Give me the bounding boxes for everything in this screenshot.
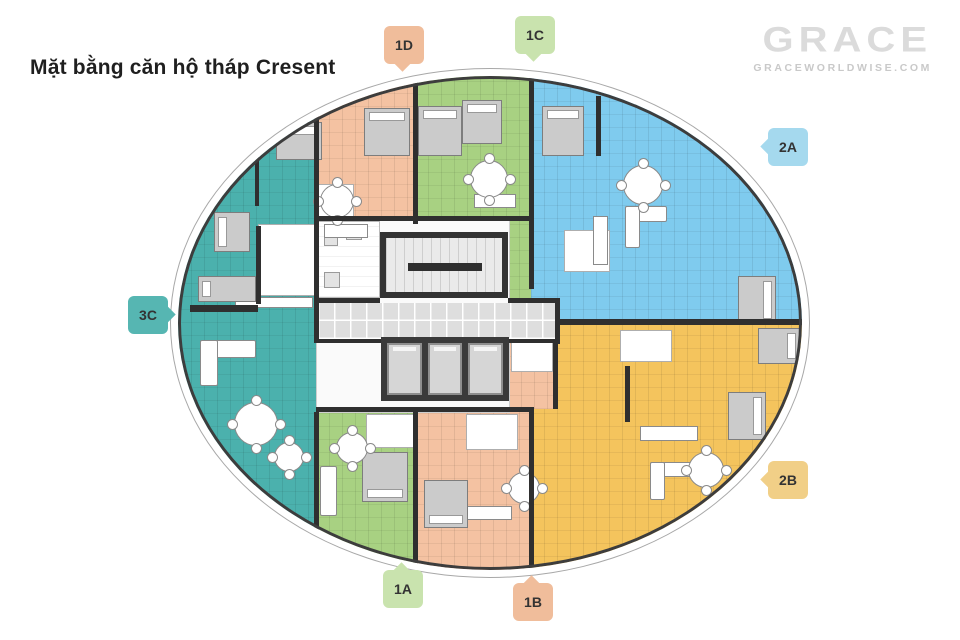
dining-chair: [484, 195, 495, 206]
wall: [508, 298, 560, 303]
bed: [728, 392, 766, 440]
bed: [424, 480, 468, 528]
bed: [462, 100, 502, 144]
floor-plan: [178, 76, 802, 570]
kitchen-counter: [640, 426, 698, 441]
dining-chair: [537, 483, 548, 494]
dining-chair: [519, 465, 530, 476]
dining-chair: [484, 153, 495, 164]
wall: [255, 152, 259, 206]
dining-chair: [701, 445, 712, 456]
wall: [316, 407, 534, 412]
dining-table: [320, 184, 354, 218]
bed-pillow: [218, 217, 227, 247]
dining-table: [508, 472, 540, 504]
dining-table: [470, 160, 508, 198]
wall: [190, 305, 258, 312]
dining-chair: [616, 180, 627, 191]
wall: [529, 76, 534, 289]
sofa: [625, 206, 640, 248]
unit-tag-3C[interactable]: 3C: [128, 296, 168, 334]
wall: [314, 412, 319, 570]
brand-website: GRACEWORLDWISE.COM: [753, 62, 932, 74]
dining-chair: [681, 465, 692, 476]
wall: [529, 412, 534, 570]
brand-watermark: GRACE GRACEWORLDWISE.COM: [753, 20, 932, 74]
wall: [316, 216, 534, 221]
sofa: [650, 462, 665, 500]
bed: [364, 108, 410, 156]
sofa: [200, 340, 218, 386]
bed-pillow: [787, 333, 796, 359]
bed-pillow: [369, 112, 405, 121]
tag-label: 1D: [384, 26, 424, 64]
bed-pillow: [202, 281, 211, 297]
bed: [198, 276, 256, 302]
dining-table: [623, 165, 663, 205]
wall: [553, 339, 558, 409]
wall: [625, 366, 630, 422]
unit-tag-1B[interactable]: 1B: [513, 583, 553, 621]
wall: [596, 96, 601, 156]
dining-chair: [463, 174, 474, 185]
dining-chair: [660, 180, 671, 191]
plan-items-layer: [178, 76, 802, 570]
bathroom: [511, 342, 553, 372]
sofa: [320, 466, 337, 516]
bed: [738, 276, 776, 324]
bed-pillow: [547, 110, 579, 119]
bed-pillow: [753, 397, 762, 435]
tag-label: 3C: [128, 296, 168, 334]
kitchen-counter: [324, 224, 368, 238]
dining-chair: [332, 177, 343, 188]
dining-chair: [505, 174, 516, 185]
tag-label: 1C: [515, 16, 555, 54]
dining-table: [234, 402, 278, 446]
dining-chair: [638, 158, 649, 169]
dining-chair: [251, 395, 262, 406]
dining-chair: [275, 419, 286, 430]
bathroom: [258, 224, 316, 296]
bed: [362, 452, 408, 502]
wall: [314, 76, 319, 224]
unit-tag-2A[interactable]: 2A: [768, 128, 808, 166]
dining-chair: [365, 443, 376, 454]
dining-chair: [721, 465, 732, 476]
bathroom: [620, 330, 672, 362]
tag-label: 2B: [768, 461, 808, 499]
unit-tag-1A[interactable]: 1A: [383, 570, 423, 608]
bed: [542, 106, 584, 156]
dining-chair: [638, 202, 649, 213]
bed-pillow: [429, 515, 463, 524]
unit-tag-1D[interactable]: 1D: [384, 26, 424, 64]
wall: [314, 216, 319, 342]
dining-chair: [227, 419, 238, 430]
tag-label: 1B: [513, 583, 553, 621]
dining-chair: [329, 443, 340, 454]
bed-pillow: [367, 489, 403, 498]
dining-table: [688, 452, 724, 488]
dining-chair: [519, 501, 530, 512]
bed-pillow: [763, 281, 772, 319]
wall: [256, 226, 261, 304]
wall: [314, 298, 380, 303]
dining-chair: [284, 435, 295, 446]
wall: [413, 76, 418, 224]
kitchen-counter: [593, 216, 608, 265]
tag-label: 2A: [768, 128, 808, 166]
bed: [418, 106, 462, 156]
bed: [758, 328, 800, 364]
wall: [555, 298, 560, 344]
dining-chair: [347, 461, 358, 472]
wall: [509, 339, 555, 343]
unit-tag-1C[interactable]: 1C: [515, 16, 555, 54]
page: { "title": "Mặt bằng căn hộ tháp Cresent…: [0, 0, 960, 640]
dining-chair: [284, 469, 295, 480]
dining-chair: [301, 452, 312, 463]
bathroom: [466, 414, 518, 450]
bed: [214, 212, 250, 252]
dining-chair: [701, 485, 712, 496]
wall: [558, 319, 802, 325]
dining-chair: [501, 483, 512, 494]
tag-label: 1A: [383, 570, 423, 608]
wall: [314, 339, 381, 343]
bed-pillow: [467, 104, 497, 113]
dining-chair: [347, 425, 358, 436]
unit-tag-2B[interactable]: 2B: [768, 461, 808, 499]
dining-chair: [251, 443, 262, 454]
dining-chair: [351, 196, 362, 207]
dining-table: [336, 432, 368, 464]
grace-logo: GRACE: [753, 22, 932, 57]
dining-chair: [267, 452, 278, 463]
bathroom-fixture: [324, 272, 340, 288]
bed-pillow: [423, 110, 457, 119]
dining-table: [274, 442, 304, 472]
wall: [413, 412, 418, 570]
bed-pillow: [281, 126, 317, 135]
